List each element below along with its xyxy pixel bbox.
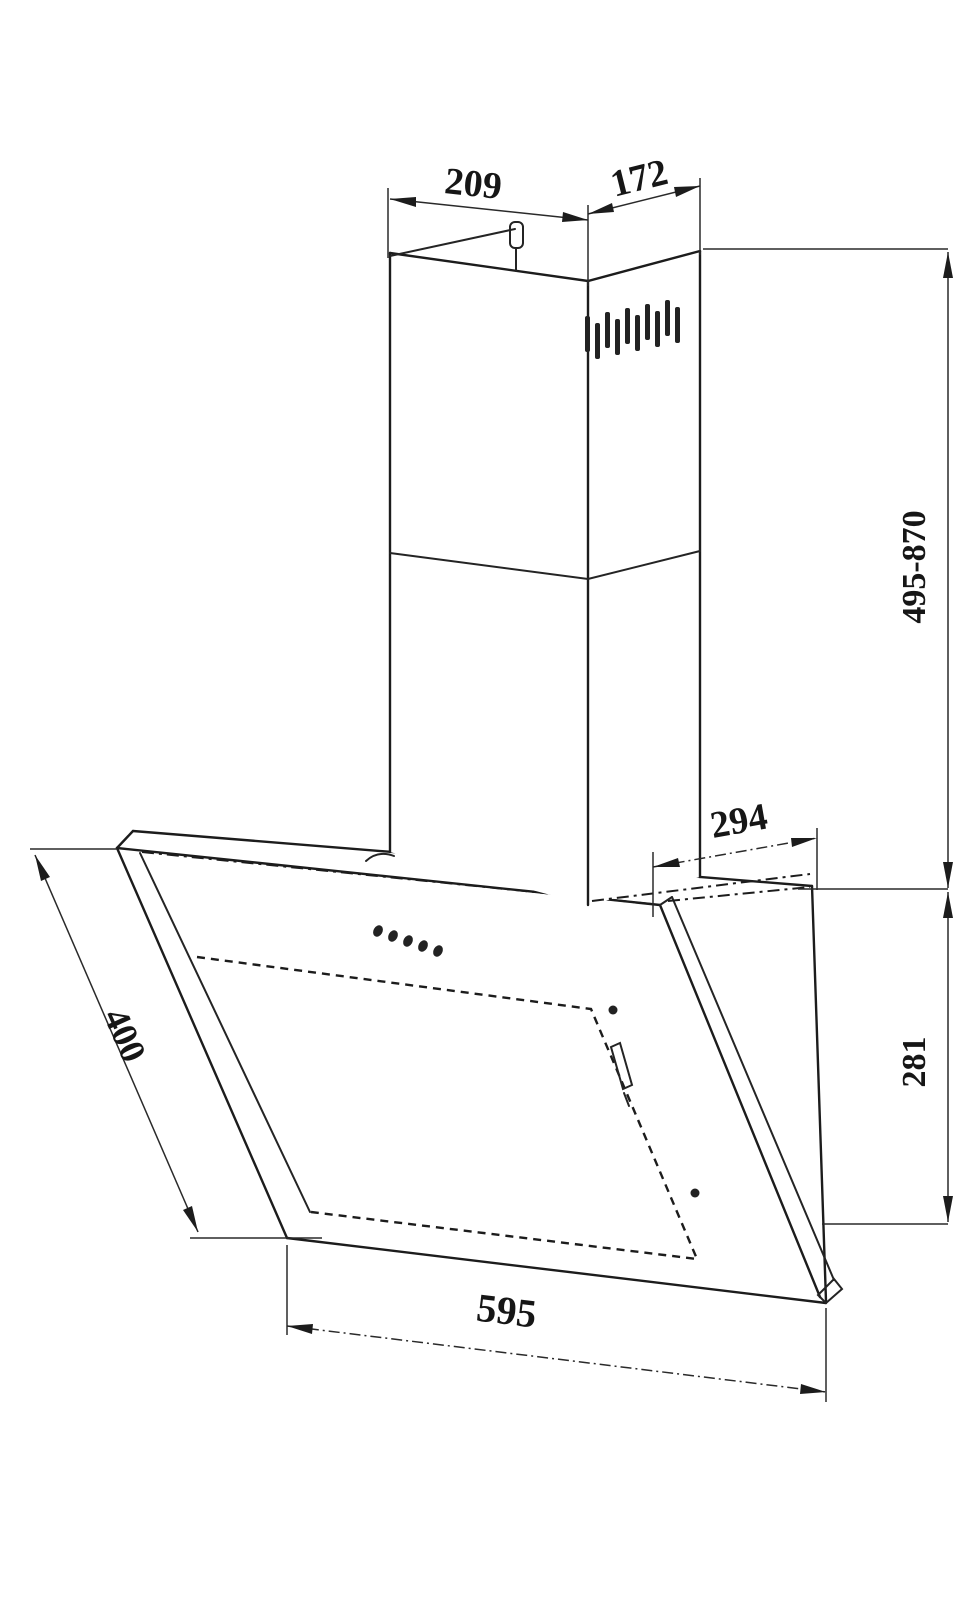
vent-slot — [665, 300, 670, 336]
vent-slot — [585, 316, 590, 352]
control-button — [416, 939, 430, 954]
right-strip-outer-edge — [660, 905, 820, 1297]
chimney-base-bracket — [366, 854, 394, 861]
dimension-glass-length: 400 — [30, 849, 322, 1238]
dimension-chimney-height: 495-870 — [703, 249, 953, 889]
arrowhead — [562, 212, 588, 222]
handle-mark — [611, 1043, 632, 1089]
vent-slot — [595, 323, 600, 359]
dim-label-294: 294 — [707, 796, 770, 847]
arrowhead — [287, 1324, 313, 1334]
control-button — [386, 929, 400, 944]
hood-top-face-edge — [668, 887, 810, 901]
control-buttons — [371, 924, 445, 959]
vent-slot — [655, 311, 660, 347]
vent-slot — [635, 315, 640, 351]
dim-label-595: 595 — [474, 1285, 539, 1337]
arrowhead — [674, 186, 700, 197]
fixing-dot-top — [609, 1006, 618, 1015]
drawing-page: 209 172 495-870 294 281 — [0, 0, 964, 1600]
right-strip-bottom-cap — [818, 1279, 842, 1303]
dim-label-209: 209 — [443, 160, 504, 208]
arrowhead — [943, 892, 953, 918]
hood-top-left-bevel — [117, 831, 133, 848]
arrowhead — [35, 855, 50, 881]
arrowhead — [390, 197, 416, 207]
glass-panel — [197, 957, 697, 1259]
dim-label-400: 400 — [96, 1002, 155, 1068]
dimension-hood-width: 595 — [287, 1245, 826, 1402]
hood-right-back-edge — [812, 886, 826, 1301]
arrowhead — [943, 862, 953, 888]
hood-body — [117, 831, 842, 1303]
vent-slot — [645, 304, 650, 340]
dim-label-495-870: 495-870 — [896, 510, 933, 623]
dim-label-172: 172 — [606, 151, 671, 206]
dimension-chimney-top-depth: 172 — [588, 151, 700, 255]
hood-bottom-edge — [287, 1238, 826, 1303]
chimney-front-face — [390, 253, 588, 905]
vent-slot — [625, 308, 630, 344]
dimension-hood-height: 281 — [822, 892, 953, 1224]
vent-slot — [615, 319, 620, 355]
arrowhead — [791, 838, 817, 847]
chimney-right-face — [588, 251, 700, 905]
control-button — [371, 924, 385, 939]
control-button — [401, 934, 415, 949]
cooker-hood-dimension-drawing: 209 172 495-870 294 281 — [0, 0, 964, 1600]
arrowhead — [943, 1196, 953, 1222]
fixing-dot-bottom — [691, 1189, 700, 1198]
bracket-edge — [390, 229, 515, 256]
bracket-hook-icon — [510, 222, 523, 248]
arrowhead — [800, 1384, 826, 1394]
arrowhead — [943, 252, 953, 278]
arrowhead — [183, 1206, 198, 1232]
vent-slot — [605, 312, 610, 348]
control-button — [431, 944, 445, 959]
dim-label-281: 281 — [896, 1037, 933, 1088]
right-strip-inner-edge — [672, 897, 834, 1280]
dimension-line — [287, 1326, 826, 1392]
vent-slot — [675, 307, 680, 343]
arrowhead — [588, 203, 614, 214]
